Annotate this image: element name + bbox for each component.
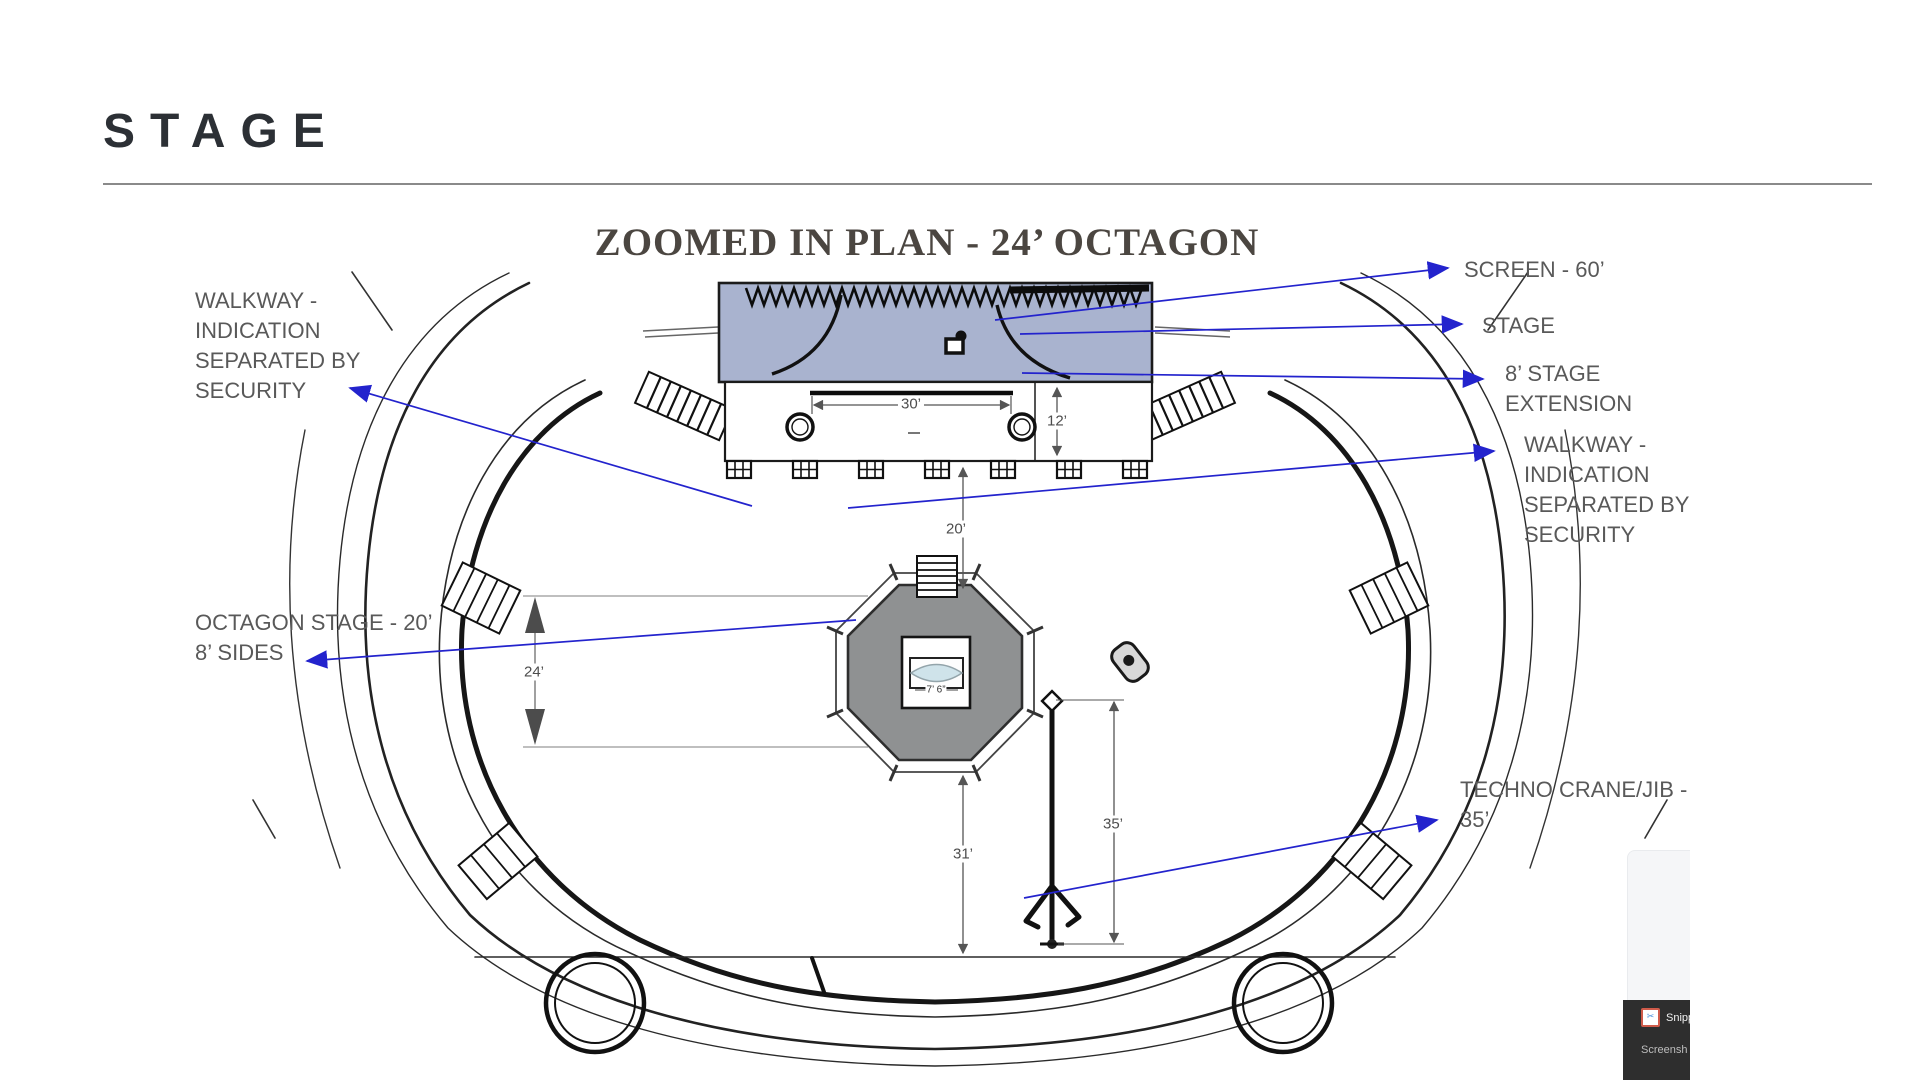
stairs-lower-right bbox=[1333, 823, 1412, 899]
dim-label-octagon-width: 24’ bbox=[521, 664, 547, 681]
crane-head bbox=[1042, 691, 1062, 711]
dim-label-stage-depth: 12’ bbox=[1044, 413, 1070, 430]
annotation-line: SEPARATED BY bbox=[195, 346, 360, 376]
stage-foot bbox=[925, 461, 949, 478]
annotation-line: INDICATION bbox=[1524, 460, 1689, 490]
annotation-line: STAGE bbox=[1482, 311, 1555, 341]
stairs-mid-right bbox=[1350, 562, 1429, 633]
stage-left-wing bbox=[643, 327, 718, 337]
bottom-left-circle bbox=[546, 954, 644, 1052]
annotation-line: TECHNO CRANE/JIB - bbox=[1460, 775, 1687, 805]
capture-fragment-panel bbox=[1627, 850, 1690, 1002]
dim-24-ext bbox=[523, 596, 868, 747]
stage-truss-band bbox=[1010, 288, 1149, 290]
stage-hole-left bbox=[787, 414, 813, 440]
dim-label-octagon-to-edge: 31’ bbox=[950, 846, 976, 863]
stage-feet bbox=[727, 461, 1147, 478]
dim-label-crane-height: 35’ bbox=[1100, 816, 1126, 833]
snipping-tool-item[interactable]: ✂ Snippi bbox=[1641, 1008, 1690, 1027]
annotation-line: SEPARATED BY bbox=[1524, 490, 1689, 520]
annotation-line: SECURITY bbox=[195, 376, 360, 406]
annotation-line: INDICATION bbox=[195, 316, 360, 346]
annotation-line: EXTENSION bbox=[1505, 389, 1632, 419]
annotation-screen: SCREEN - 60’ bbox=[1464, 255, 1605, 285]
annotation-stage-extension: 8’ STAGE EXTENSION bbox=[1505, 359, 1632, 419]
annotation-line: OCTAGON STAGE - 20’ bbox=[195, 608, 433, 638]
annotation-walkway-right: WALKWAY - INDICATION SEPARATED BY SECURI… bbox=[1524, 430, 1689, 550]
annotation-line: WALKWAY - bbox=[195, 286, 360, 316]
stage-foot bbox=[727, 461, 751, 478]
annotation-line: WALKWAY - bbox=[1524, 430, 1689, 460]
screenshot-partial-label: Screensh bbox=[1641, 1044, 1687, 1056]
stage-foot bbox=[1123, 461, 1147, 478]
annotation-techno-crane: TECHNO CRANE/JIB - 35’ bbox=[1460, 775, 1687, 835]
camera-dolly-icon bbox=[1108, 639, 1152, 685]
bottom-tick bbox=[812, 958, 824, 992]
stage-structure bbox=[643, 283, 1230, 478]
snipping-tool-thumbnail[interactable]: ✂ Snippi Screensh bbox=[1623, 1000, 1690, 1080]
stage-foot bbox=[859, 461, 883, 478]
stage-hole-right bbox=[1009, 414, 1035, 440]
annotation-line: 8’ STAGE bbox=[1505, 359, 1632, 389]
dim-24-arrow-up bbox=[525, 597, 545, 633]
stage-foot bbox=[991, 461, 1015, 478]
annotation-line: 8’ SIDES bbox=[195, 638, 433, 668]
dim-label-stage-width: 30’ bbox=[898, 396, 924, 413]
dim-label-stage-to-octagon: 20’ bbox=[943, 521, 969, 538]
stairs-lower-left bbox=[459, 823, 538, 899]
annotation-octagon: OCTAGON STAGE - 20’ 8’ SIDES bbox=[195, 608, 433, 668]
annotation-walkway-left: WALKWAY - INDICATION SEPARATED BY SECURI… bbox=[195, 286, 360, 406]
octagon-stairs bbox=[917, 556, 957, 597]
annotation-line: SCREEN - 60’ bbox=[1464, 255, 1605, 285]
snipping-tool-label: Snippi bbox=[1666, 1012, 1690, 1024]
annotation-line: SECURITY bbox=[1524, 520, 1689, 550]
techno-crane bbox=[1026, 691, 1079, 949]
slide: STAGE ZOOMED IN PLAN - 24’ OCTAGON bbox=[0, 0, 1920, 1080]
annotation-stage: STAGE bbox=[1482, 311, 1555, 341]
stage-foot bbox=[1057, 461, 1081, 478]
bottom-right-circle-inner bbox=[1243, 963, 1323, 1043]
dim-24-arrow-down bbox=[525, 709, 545, 745]
dim-label-table: 7’ 6” bbox=[925, 685, 946, 696]
stairs-mid-left bbox=[442, 562, 521, 633]
stage-foot bbox=[793, 461, 817, 478]
annotation-line: 35’ bbox=[1460, 805, 1687, 835]
snipping-tool-icon: ✂ bbox=[1641, 1008, 1660, 1027]
stage-right-wing bbox=[1155, 327, 1230, 337]
